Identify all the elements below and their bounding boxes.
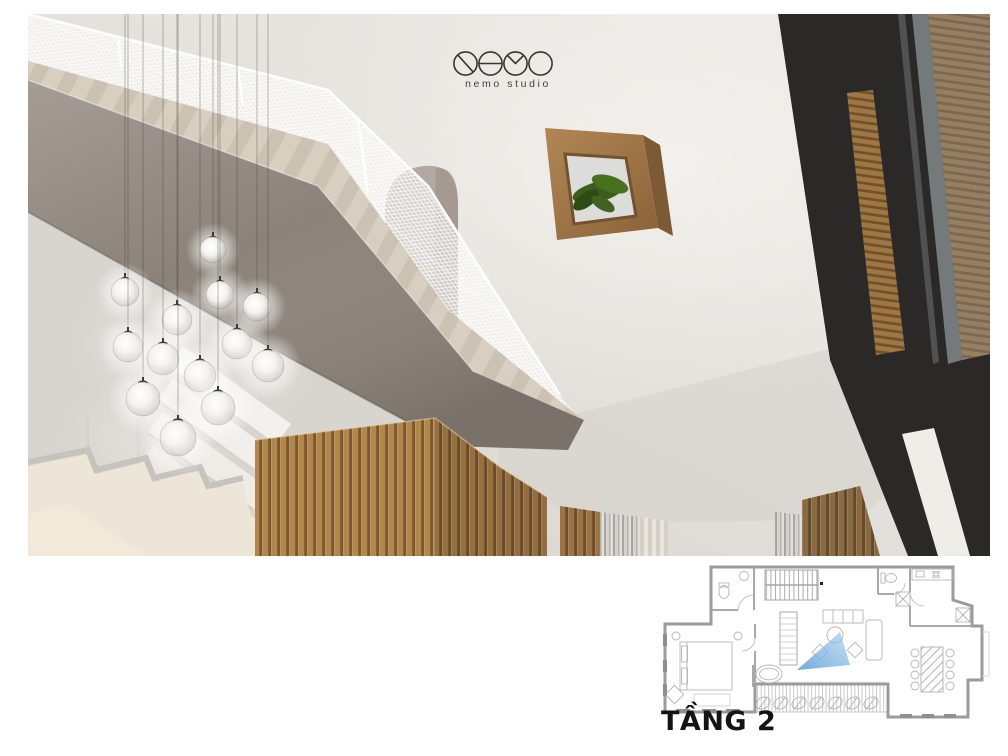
plan-wardrobe: [780, 612, 797, 665]
render-view: nemo studio: [28, 14, 990, 556]
plan-dining-table: [921, 647, 943, 692]
plan-stairs: [765, 570, 823, 600]
floor-plan: [660, 562, 990, 720]
plant-shelf-box: [545, 128, 673, 240]
render-scene: [28, 14, 990, 556]
logo-o-circle: [529, 52, 552, 75]
nemo-studio-logo: nemo studio: [452, 50, 564, 90]
plan-label: TẦNG 2: [661, 706, 776, 737]
logo-circles: [452, 50, 554, 77]
logo-m-stroke: [508, 56, 524, 64]
logo-n-stroke: [458, 55, 473, 72]
page-root: nemo studio: [0, 0, 1008, 756]
plan-marker-dot: [820, 582, 823, 585]
logo-text: nemo studio: [452, 78, 564, 90]
